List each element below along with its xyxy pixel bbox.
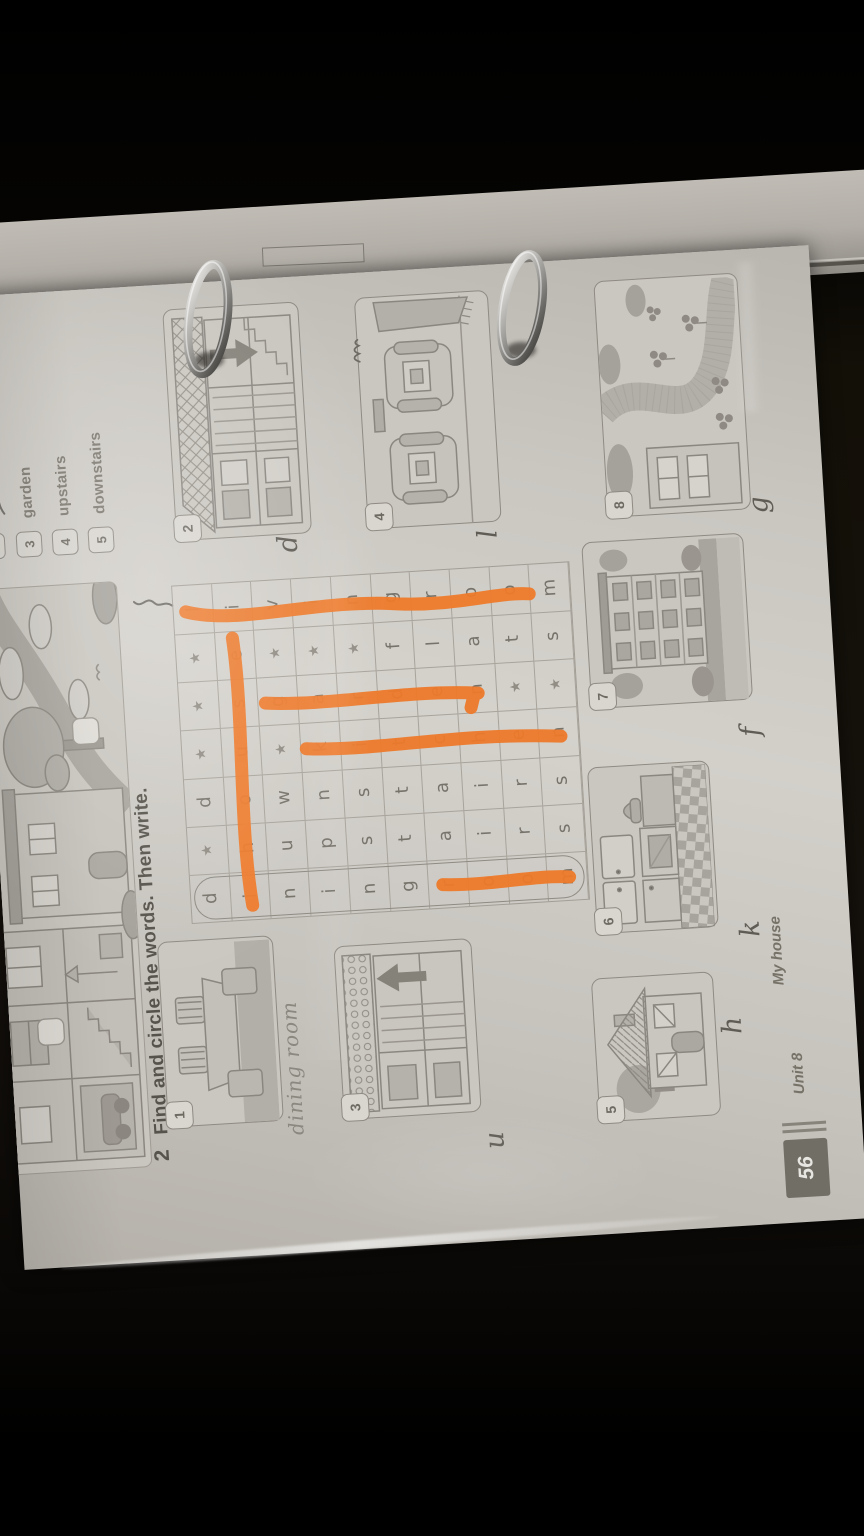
grid-cell-r1-c3: d [184,776,227,826]
picture-box-8: 8 [593,273,751,518]
answer-letter-u: u [479,1131,511,1150]
grid-cell-r5-c2: s [345,815,388,865]
word-list-word: downstairs [86,431,108,514]
word-list-item-garden: 3 garden [12,466,43,558]
grid-cell-r5-c7: n [331,574,374,624]
grid-cell-r1-c1: d [190,872,233,922]
grid-cell-r3-c2: u [266,820,309,870]
picture-1-number: 1 [165,1100,195,1130]
exercise1-scene-picture [0,581,152,1177]
word-list-item-upstairs: 4 upstairs [47,455,79,556]
grid-cell-r7-c6: l [413,618,456,668]
grid-cell-r1-c2: ★ [187,824,230,874]
grid-cell-r10-c4: n [538,707,581,757]
grid-cell-r10-c3: s [540,755,583,805]
exercise-number: 2 [150,1149,175,1162]
workbook-page-wrapper: 3 garden 4 upstairs 5 downstairs 2 Find … [0,245,864,1270]
grid-cell-r4-c2: p [306,817,349,867]
grid-cell-r5-c6: ★ [334,623,377,673]
grid-cell-r3-c6: ★ [254,627,297,677]
grid-cell-r6-c2: t [385,812,428,862]
grid-cell-r4-c1: i [309,865,352,915]
grid-cell-r3-c5: g [257,675,300,725]
grid-cell-r8-c6: a [452,615,495,665]
picture-box-5: 5 [591,971,722,1122]
grid-cell-r1-c5: ★ [178,680,221,730]
grid-cell-r8-c1: o [467,856,510,906]
grid-cell-r3-c7: v [251,579,294,629]
grid-cell-r1-c4: ★ [181,728,224,778]
grid-cell-r7-c1: r [427,858,470,908]
answer-letter-k: k [735,920,767,938]
picture-3-number: 3 [340,1093,370,1123]
grid-cell-r6-c3: t [382,764,425,814]
picture-5-number: 5 [596,1095,626,1125]
scene-label-box [72,717,100,745]
word-list-number: 3 [15,530,43,558]
grid-cell-r9-c7: o [489,565,532,615]
workbook-page: 3 garden 4 upstairs 5 downstairs 2 Find … [0,245,864,1270]
picture-box-1: 1 [157,935,284,1128]
answer-letter-g: g [743,495,775,514]
grid-cell-r6-c5: d [376,668,419,718]
grid-cell-r3-c3: w [263,772,306,822]
grid-cell-r8-c2: i [464,807,507,857]
word-list-number: 4 [51,528,79,556]
picture-8-number: 8 [604,490,634,520]
grid-cell-r2-c1: i [229,870,272,920]
grid-cell-r6-c1: g [388,860,431,910]
grid-cell-r4-c6: ★ [294,625,337,675]
unit-label: Unit 8 [789,1052,809,1095]
word-list-word: upstairs [51,455,72,517]
grid-cell-r7-c4: c [419,714,462,764]
picture-box-3: 3 [333,938,481,1120]
grid-cell-r10-c2: s [543,803,586,853]
grid-cell-r7-c3: a [422,762,465,812]
photo-stage: 3 garden 4 upstairs 5 downstairs 2 Find … [0,0,864,1536]
grid-cell-r2-c6: e [215,630,258,680]
page-number-box: 56 [783,1138,830,1199]
grid-cell-r9-c3: r [501,757,544,807]
grid-cell-r2-c7: i [212,582,255,632]
word-list-numbox-cropped [0,533,6,560]
answer-letter-h: h [716,1016,748,1035]
grid-cell-r9-c4: e [498,709,541,759]
grid-cell-r5-c1: n [348,863,391,913]
picture-2-number: 2 [173,514,203,544]
grid-cell-r9-c1: o [507,853,550,903]
grid-cell-r6-c7: g [370,572,413,622]
grid-cell-r9-c2: r [504,805,547,855]
word-list-word: garden [16,466,36,519]
grid-cell-r3-c4: ★ [260,723,303,773]
grid-cell-r10-c1: m [546,851,589,901]
picture-7-number: 7 [588,682,618,712]
grid-cell-r1-c6: ★ [175,632,218,682]
unit-topic: My house [766,916,787,986]
street-scene-illustration [0,582,151,1176]
grid-cell-r9-c6: t [492,613,535,663]
word-list-number: 5 [87,526,115,554]
grid-cell-r7-c7: r [410,570,453,620]
footer-stripe [782,1128,826,1134]
grid-cell-r7-c2: a [425,810,468,860]
grid-cell-r10-c6: s [532,610,575,660]
grid-cell-r6-c6: f [373,620,416,670]
dining-room-illustration [158,939,280,1126]
garden-path-illustration [595,277,748,517]
grid-cell-r10-c5: ★ [535,658,578,708]
grid-cell-r2-c3: o [223,774,266,824]
grid-cell-r2-c4: u [221,726,264,776]
grid-cell-r3-c1: n [269,868,312,918]
wordsearch-grid: d★d★★★lihouseinuw★g★vipnka★inssir★ngtttd… [171,561,590,924]
grid-cell-r8-c5: n [455,663,498,713]
back-sheet-drawing [262,243,365,266]
grid-cell-r2-c2: h [226,822,269,872]
living-room-armchairs-illustration [355,294,498,528]
grid-cell-r1-c7: l [172,584,215,634]
footer-stripe [782,1121,826,1127]
grid-cell-r4-c3: n [303,769,346,819]
picture-6-number: 6 [594,907,624,937]
grid-cell-r5-c4: i [339,719,382,769]
grid-cell-r5-c3: s [342,767,385,817]
picture-4-number: 4 [364,502,394,532]
grid-cell-r2-c5: s [218,678,261,728]
grid-cell-r6-c4: t [379,716,422,766]
grid-cell-r7-c5: e [416,666,459,716]
picture-box-4: 4 [354,290,502,530]
grid-cell-r8-c7: o [449,567,492,617]
word-list-item-downstairs: 5 downstairs [82,431,115,554]
grid-cell-r5-c5: r [336,671,379,721]
grid-cell-r4-c5: a [297,673,340,723]
pencil-scribble [0,453,11,521]
scene-label-box [37,1018,65,1046]
grid-cell-r9-c5: ★ [495,661,538,711]
grid-cell-r10-c7: m [529,562,572,612]
answer-letter-f: f [735,726,767,738]
answer-letter-d: d [272,534,304,553]
picture-box-6: 6 [587,760,719,934]
grid-cell-r4-c4: k [300,721,343,771]
grid-cell-r8-c4: h [458,711,501,761]
grid-cell-r8-c3: i [461,759,504,809]
picture-box-7: 7 [581,533,753,710]
grid-cell-r4-c7: i [291,577,334,627]
answer-letter-l: l [472,529,503,540]
